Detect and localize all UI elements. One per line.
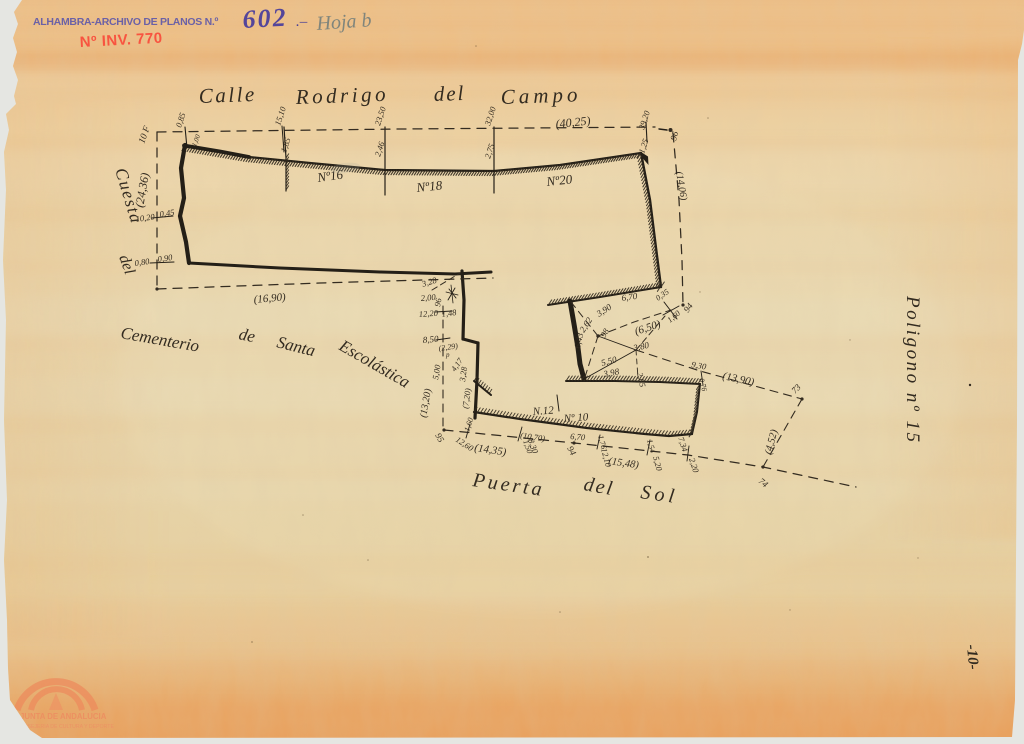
svg-text:12,20: 12,20: [418, 308, 439, 319]
svg-text:.–: .–: [296, 14, 308, 30]
svg-text:Nº20: Nº20: [545, 171, 574, 189]
svg-text:p: p: [445, 351, 450, 359]
svg-text:N.12: N.12: [531, 405, 554, 419]
svg-text:0,45: 0,45: [159, 207, 175, 219]
svg-text:8,50: 8,50: [422, 334, 439, 345]
svg-text:del: del: [433, 81, 465, 106]
svg-text:Rodrigo: Rodrigo: [294, 82, 389, 109]
svg-text:Campo: Campo: [500, 82, 581, 109]
svg-text:CONSEJERIA DE CULTURA Y DEPORT: CONSEJERIA DE CULTURA Y DEPORTE: [16, 724, 114, 730]
svg-text:-10-: -10-: [963, 644, 981, 670]
svg-text:ALHAMBRA-ARCHIVO DE PLANOS N.º: ALHAMBRA-ARCHIVO DE PLANOS N.º: [33, 16, 218, 28]
svg-text:Nº18: Nº18: [415, 177, 444, 195]
svg-text:Hoja b: Hoja b: [315, 9, 372, 35]
svg-text:Calle: Calle: [198, 82, 257, 108]
svg-text:Poligono nº 15: Poligono nº 15: [902, 295, 923, 445]
svg-text:Nº 10: Nº 10: [562, 411, 589, 425]
svg-text:JUNTA DE ANDALUCIA: JUNTA DE ANDALUCIA: [20, 712, 107, 721]
svg-text:602: 602: [242, 3, 288, 34]
svg-text:6,70: 6,70: [570, 431, 586, 442]
